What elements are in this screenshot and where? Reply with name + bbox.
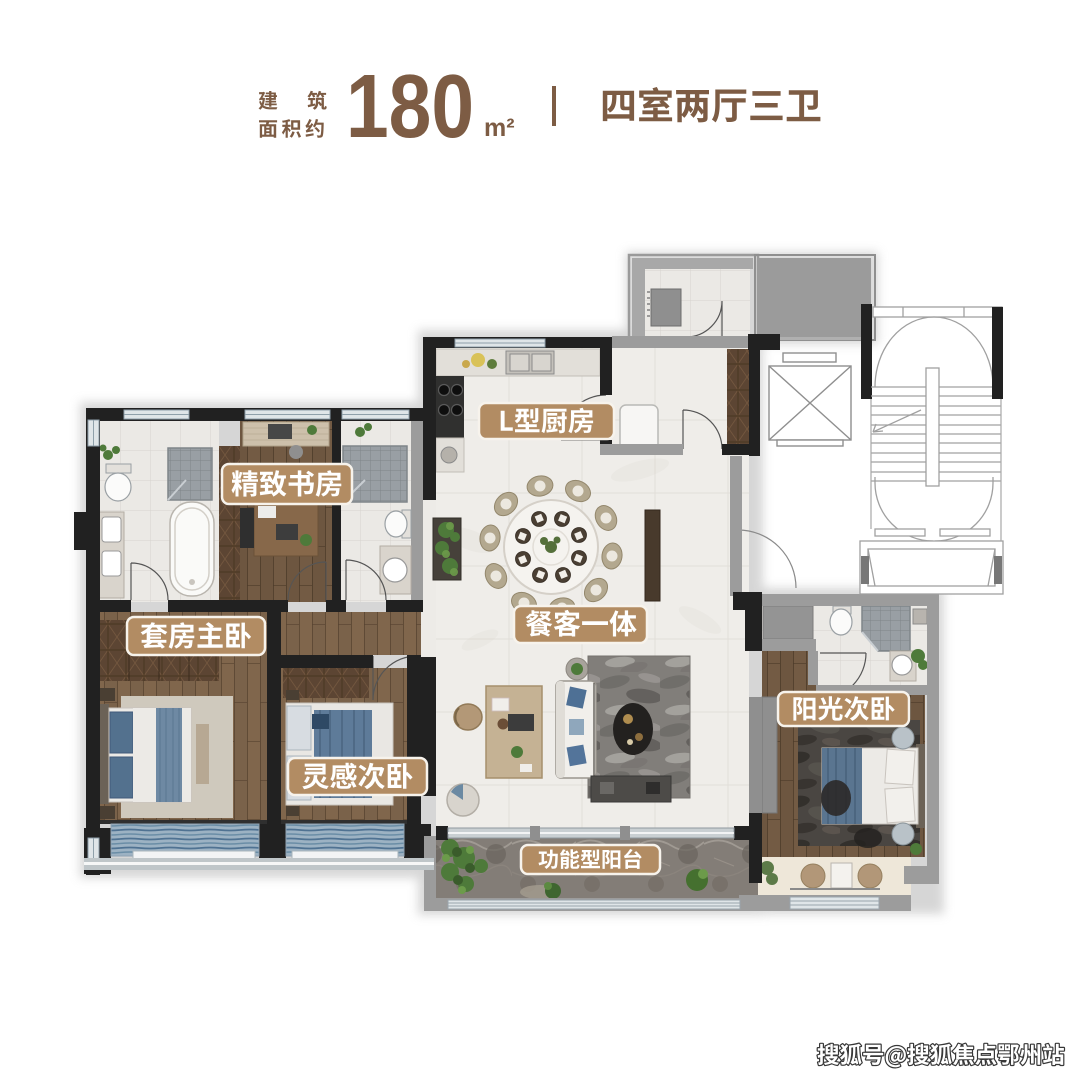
svg-text:180: 180: [346, 57, 474, 157]
svg-text:m²: m²: [484, 114, 515, 142]
